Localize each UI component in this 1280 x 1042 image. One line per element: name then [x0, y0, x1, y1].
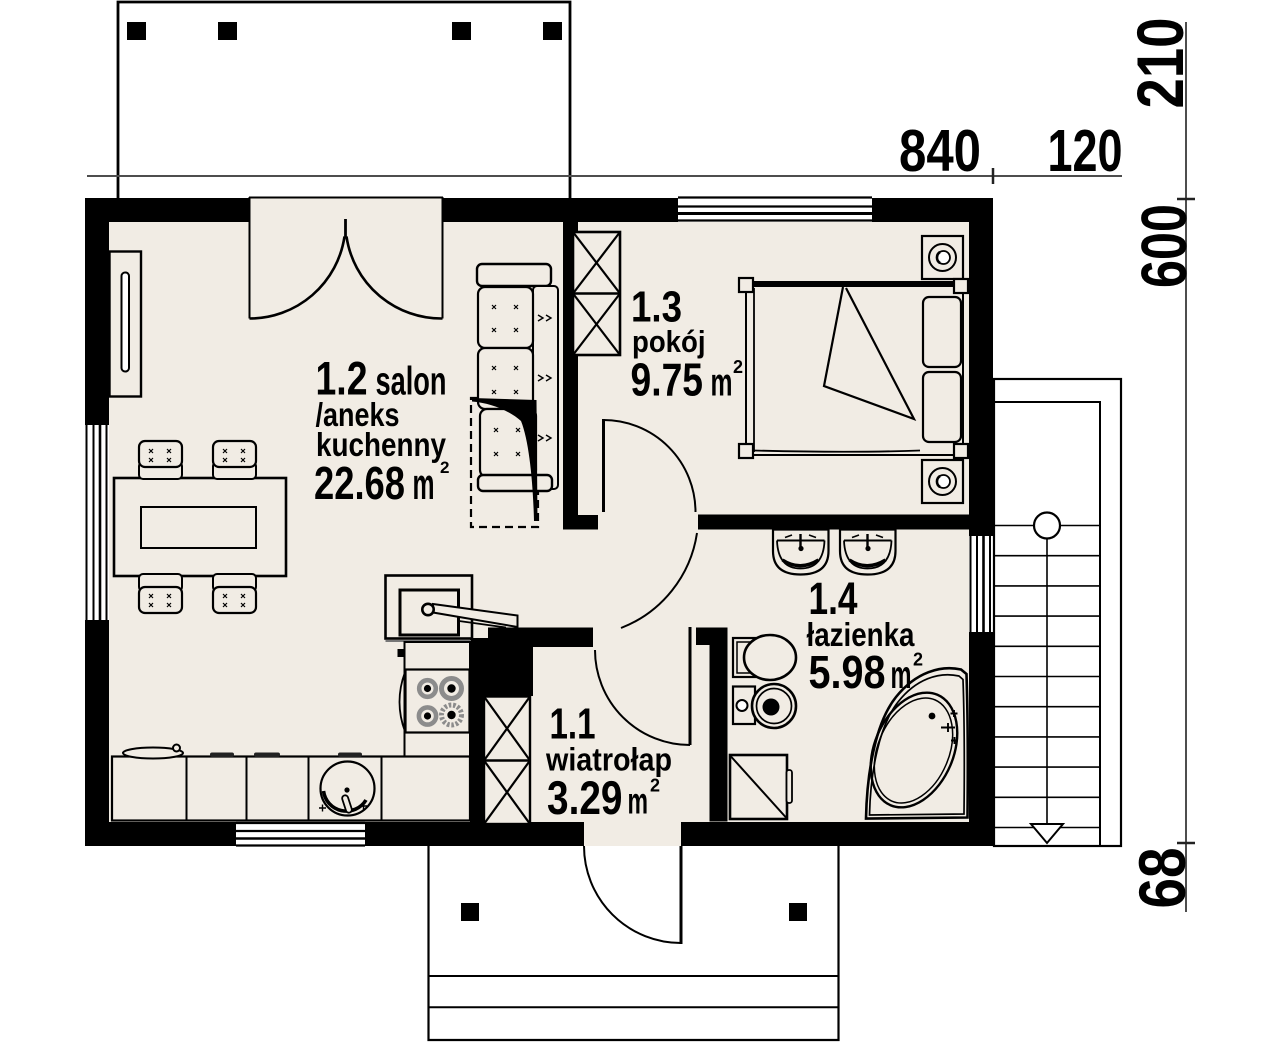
- svg-text:2: 2: [650, 776, 660, 796]
- svg-text:210: 210: [1123, 18, 1197, 109]
- svg-text:68: 68: [1125, 848, 1199, 909]
- svg-text:m: m: [711, 362, 733, 405]
- svg-text:m: m: [413, 460, 435, 509]
- svg-text:3.29: 3.29: [547, 771, 623, 824]
- svg-text:22.68: 22.68: [314, 457, 405, 509]
- svg-text:840: 840: [899, 118, 981, 184]
- svg-text:120: 120: [1048, 118, 1123, 184]
- svg-text:5.98: 5.98: [809, 646, 886, 698]
- svg-text:2: 2: [913, 650, 923, 670]
- svg-text:m: m: [628, 781, 649, 822]
- svg-text:m: m: [891, 654, 912, 697]
- svg-text:2: 2: [440, 458, 449, 477]
- svg-text:600: 600: [1128, 204, 1200, 288]
- svg-text:2: 2: [733, 357, 743, 377]
- svg-text:9.75: 9.75: [631, 354, 704, 406]
